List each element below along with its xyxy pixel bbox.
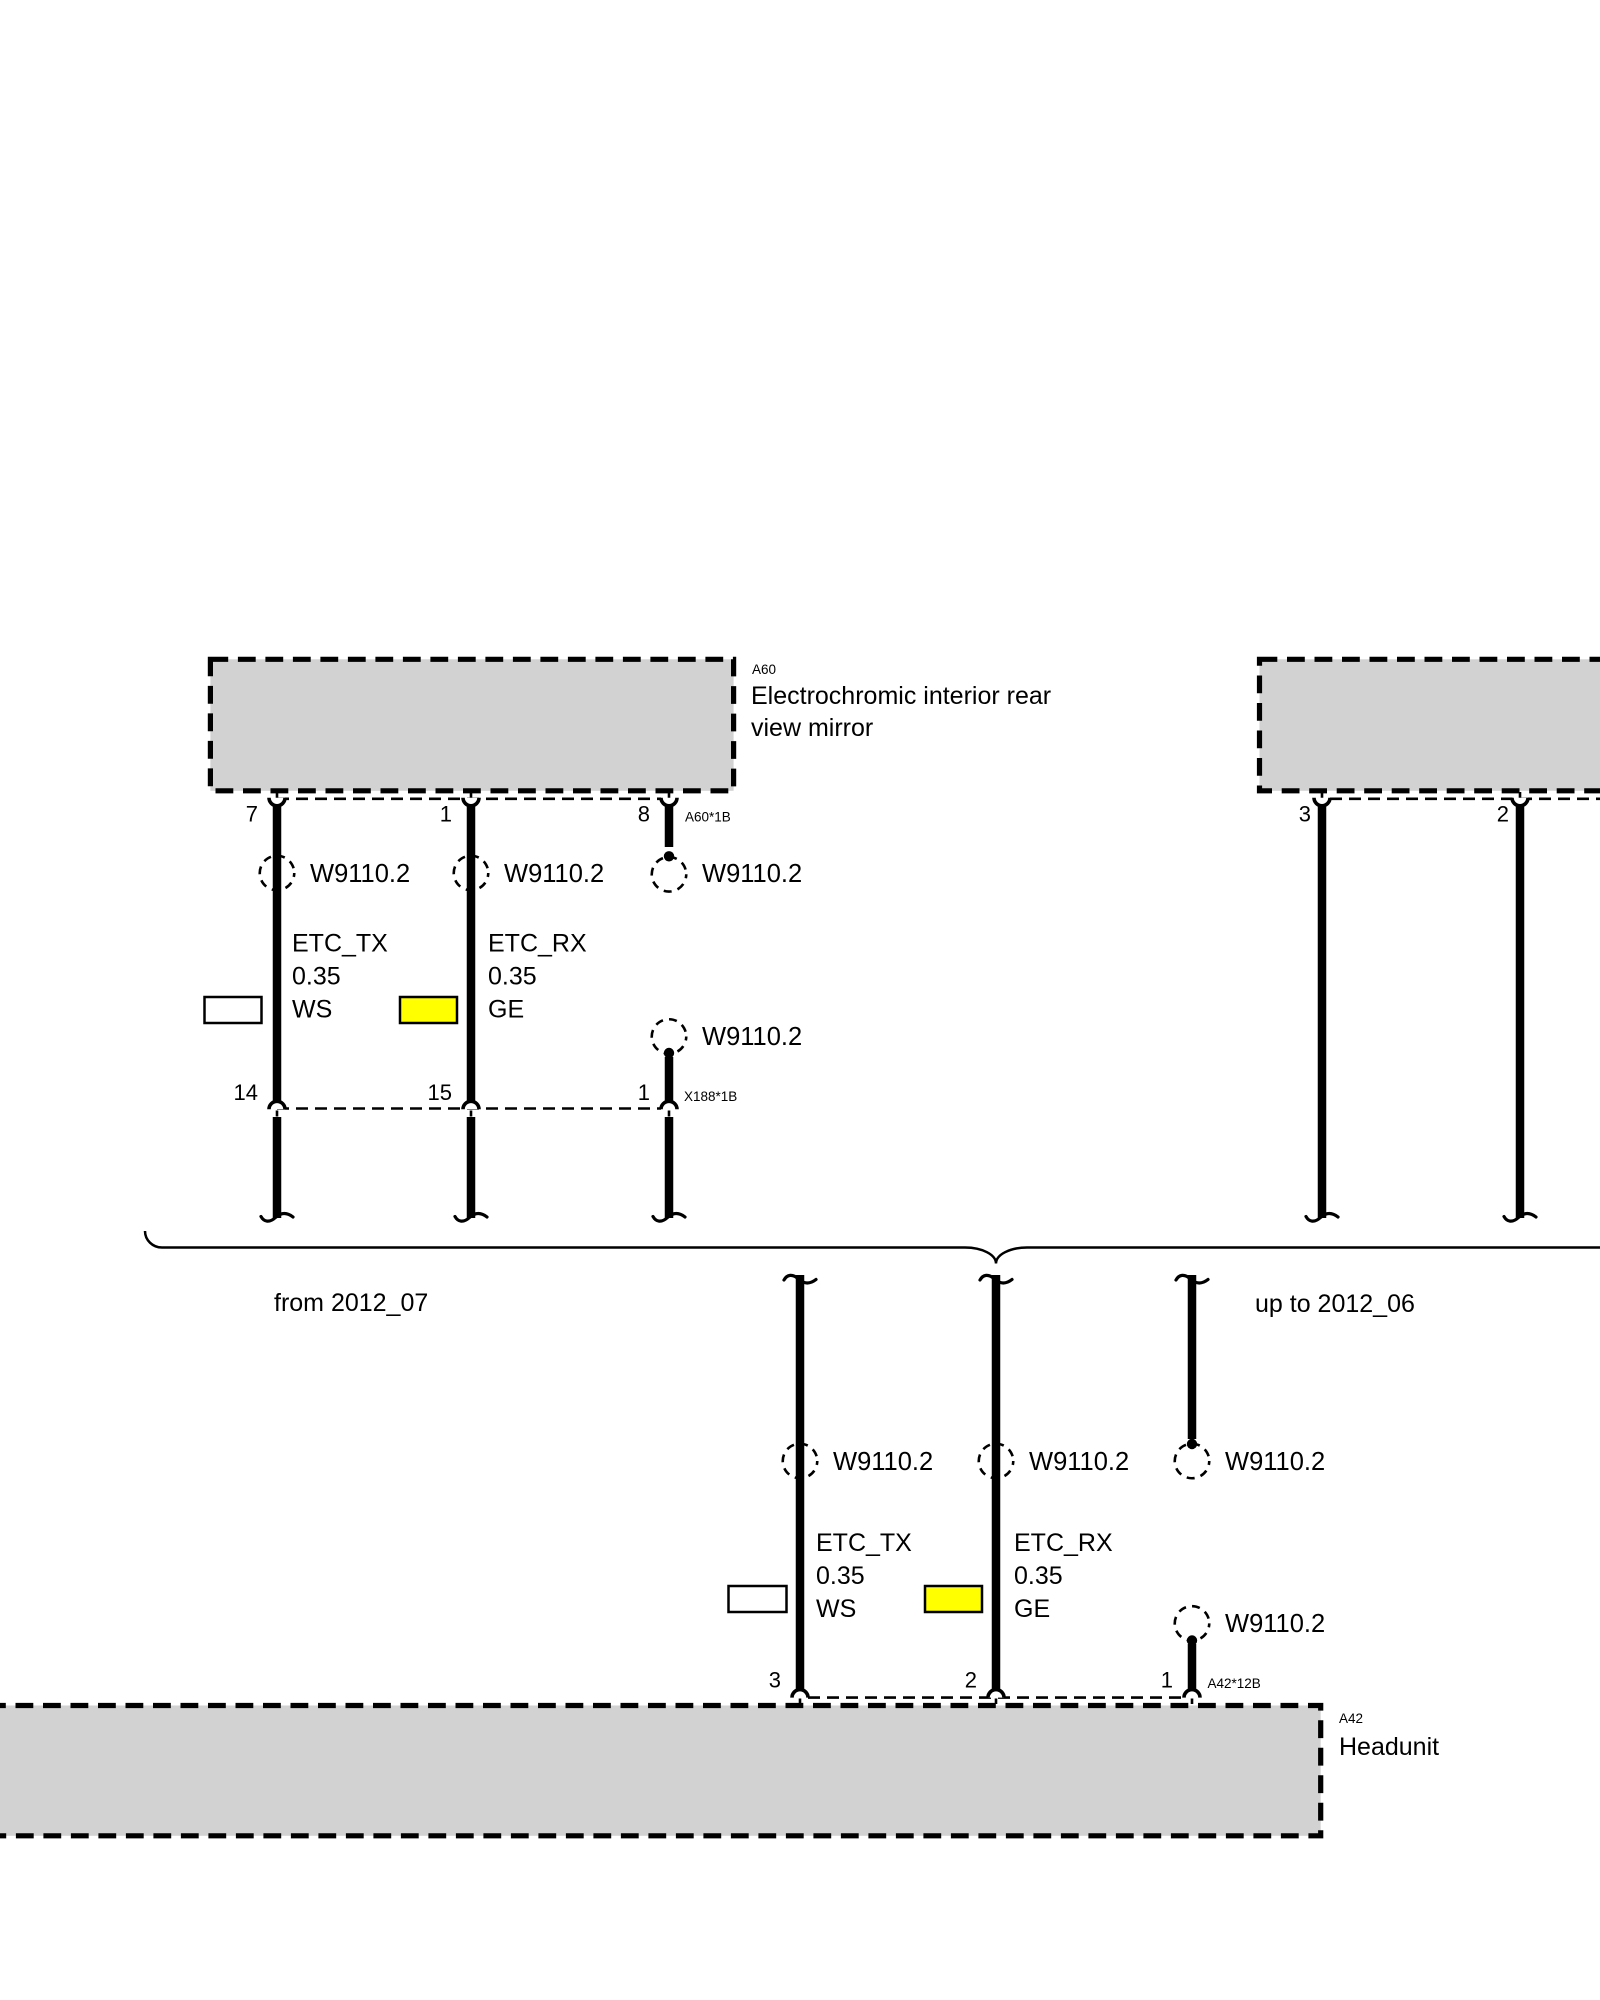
svg-text:W9110.2: W9110.2 <box>310 860 410 888</box>
svg-text:W9110.2: W9110.2 <box>1225 1448 1325 1476</box>
svg-text:A60: A60 <box>752 662 776 677</box>
svg-text:8: 8 <box>638 802 650 827</box>
svg-text:W9110.2: W9110.2 <box>1225 1610 1325 1638</box>
svg-text:WS: WS <box>816 1595 856 1623</box>
svg-text:A42: A42 <box>1339 1711 1363 1726</box>
svg-text:ETC_TX: ETC_TX <box>816 1529 912 1557</box>
svg-text:ETC_TX: ETC_TX <box>292 930 388 958</box>
svg-text:W9110.2: W9110.2 <box>702 860 802 888</box>
svg-text:1: 1 <box>440 802 452 827</box>
svg-text:Headunit: Headunit <box>1339 1733 1439 1761</box>
svg-text:ETC_RX: ETC_RX <box>1014 1529 1113 1557</box>
svg-text:0.35: 0.35 <box>292 963 341 991</box>
svg-text:view mirror: view mirror <box>751 714 873 742</box>
svg-text:1: 1 <box>1161 1668 1173 1693</box>
svg-text:up to 2012_06: up to 2012_06 <box>1255 1290 1415 1318</box>
svg-text:GE: GE <box>488 996 524 1024</box>
svg-text:W9110.2: W9110.2 <box>833 1448 933 1476</box>
svg-text:2: 2 <box>1497 802 1509 827</box>
svg-text:2: 2 <box>965 1668 977 1693</box>
svg-text:7: 7 <box>246 802 258 827</box>
svg-text:X188*1B: X188*1B <box>684 1089 737 1104</box>
svg-text:WS: WS <box>292 996 332 1024</box>
svg-text:0.35: 0.35 <box>1014 1562 1063 1590</box>
svg-text:14: 14 <box>234 1080 258 1105</box>
svg-text:W9110.2: W9110.2 <box>702 1023 802 1051</box>
svg-text:ETC_RX: ETC_RX <box>488 930 587 958</box>
svg-text:0.35: 0.35 <box>816 1562 865 1590</box>
svg-text:1: 1 <box>638 1080 650 1105</box>
svg-text:W9110.2: W9110.2 <box>504 860 604 888</box>
svg-text:Electrochromic interior rear: Electrochromic interior rear <box>751 682 1051 710</box>
svg-text:15: 15 <box>428 1080 452 1105</box>
svg-text:0.35: 0.35 <box>488 963 537 991</box>
svg-text:3: 3 <box>1299 802 1311 827</box>
svg-text:3: 3 <box>769 1668 781 1693</box>
svg-text:A60*1B: A60*1B <box>685 810 731 825</box>
svg-text:A42*12B: A42*12B <box>1208 1676 1261 1691</box>
svg-text:from 2012_07: from 2012_07 <box>274 1289 428 1317</box>
svg-text:W9110.2: W9110.2 <box>1029 1448 1129 1476</box>
svg-text:GE: GE <box>1014 1595 1050 1623</box>
